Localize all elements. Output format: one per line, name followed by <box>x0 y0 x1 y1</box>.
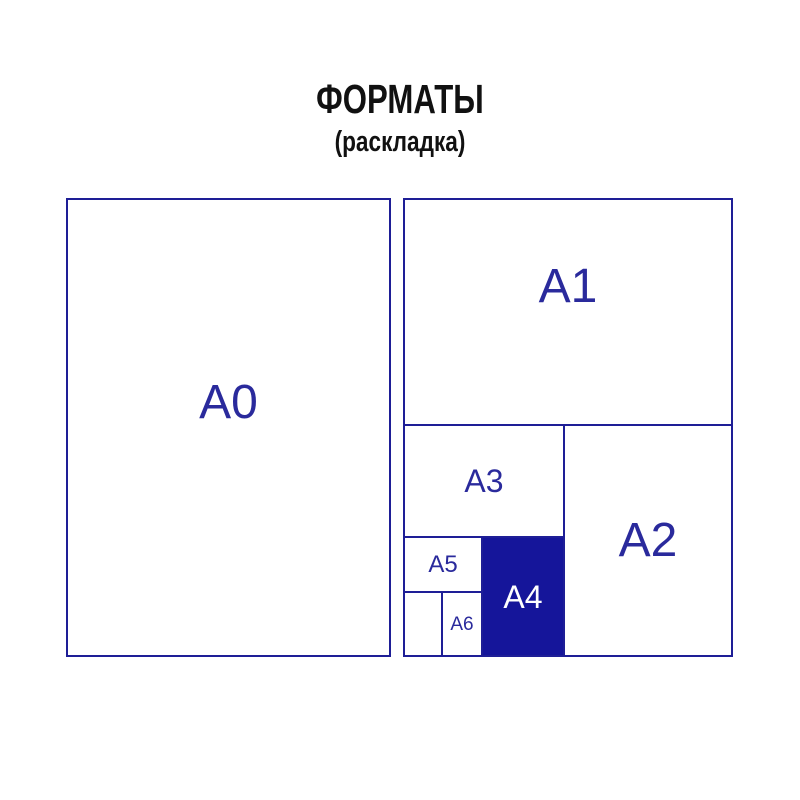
format-label-a2: A2 <box>619 517 678 565</box>
format-label-a6: A6 <box>450 615 473 634</box>
format-label-a5: A5 <box>428 553 457 577</box>
format-box-a0: A0 <box>66 198 391 657</box>
format-box-a1: A1 <box>403 198 733 426</box>
format-box-unlabeled <box>403 591 443 657</box>
format-box-a5: A5 <box>403 536 483 593</box>
format-label-a4: A4 <box>503 581 542 613</box>
format-box-a2: A2 <box>563 424 733 657</box>
format-label-a3: A3 <box>464 465 503 497</box>
format-label-a0: A0 <box>199 379 258 427</box>
format-box-a6: A6 <box>441 591 483 657</box>
format-box-a4: A4 <box>481 536 565 657</box>
paper-formats-diagram: A0 A1 A3 A2 A5 A4 A6 <box>0 0 800 800</box>
format-label-a1: A1 <box>539 263 598 311</box>
format-box-a3: A3 <box>403 424 565 538</box>
